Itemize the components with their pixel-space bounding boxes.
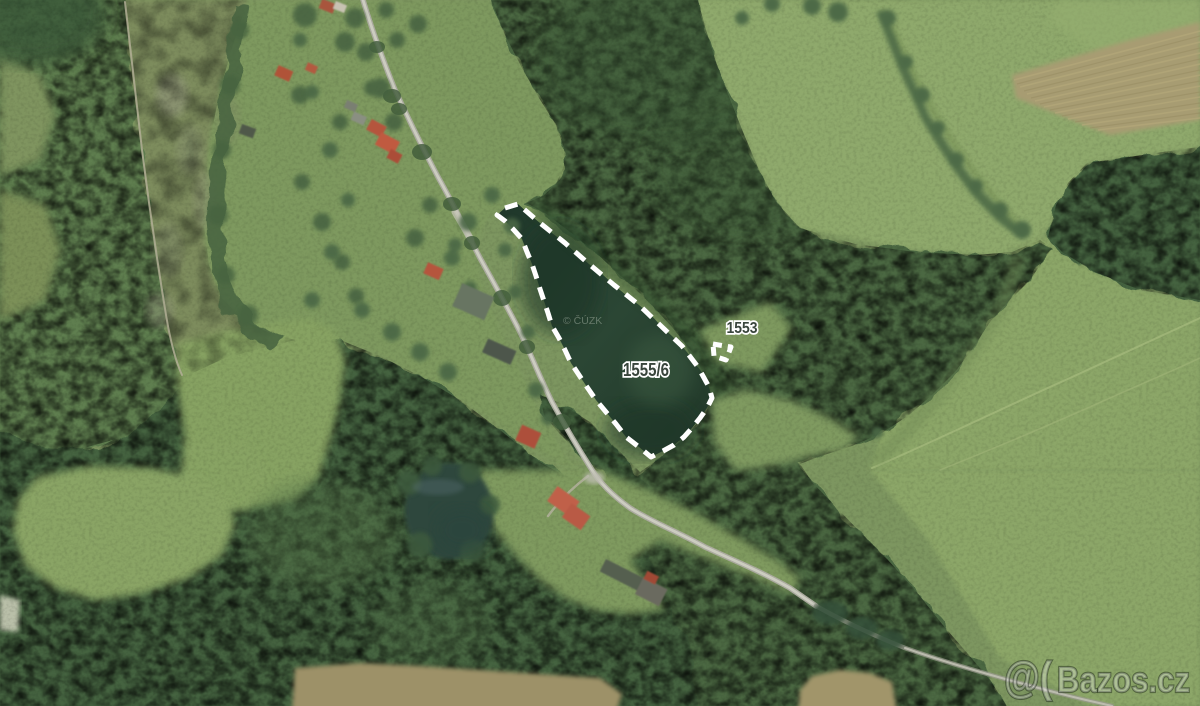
svg-text:@(: @( — [1004, 653, 1052, 702]
svg-text:1553: 1553 — [727, 320, 758, 337]
svg-text:© ČÚZK: © ČÚZK — [563, 314, 602, 327]
svg-text:1555/6: 1555/6 — [623, 360, 669, 380]
svg-text:Bazos.cz: Bazos.cz — [1057, 659, 1190, 700]
